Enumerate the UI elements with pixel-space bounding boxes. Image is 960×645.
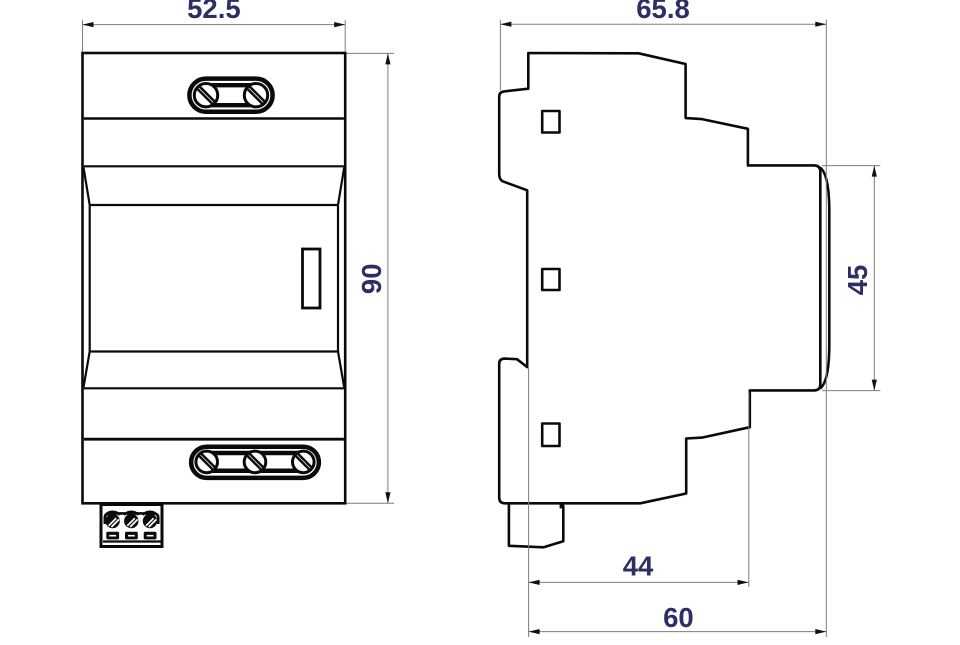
svg-text:65.8: 65.8 bbox=[636, 0, 690, 24]
svg-text:52.5: 52.5 bbox=[187, 0, 241, 24]
svg-text:60: 60 bbox=[663, 602, 694, 633]
svg-text:90: 90 bbox=[356, 264, 387, 295]
svg-text:44: 44 bbox=[623, 551, 654, 582]
svg-text:45: 45 bbox=[842, 265, 873, 296]
